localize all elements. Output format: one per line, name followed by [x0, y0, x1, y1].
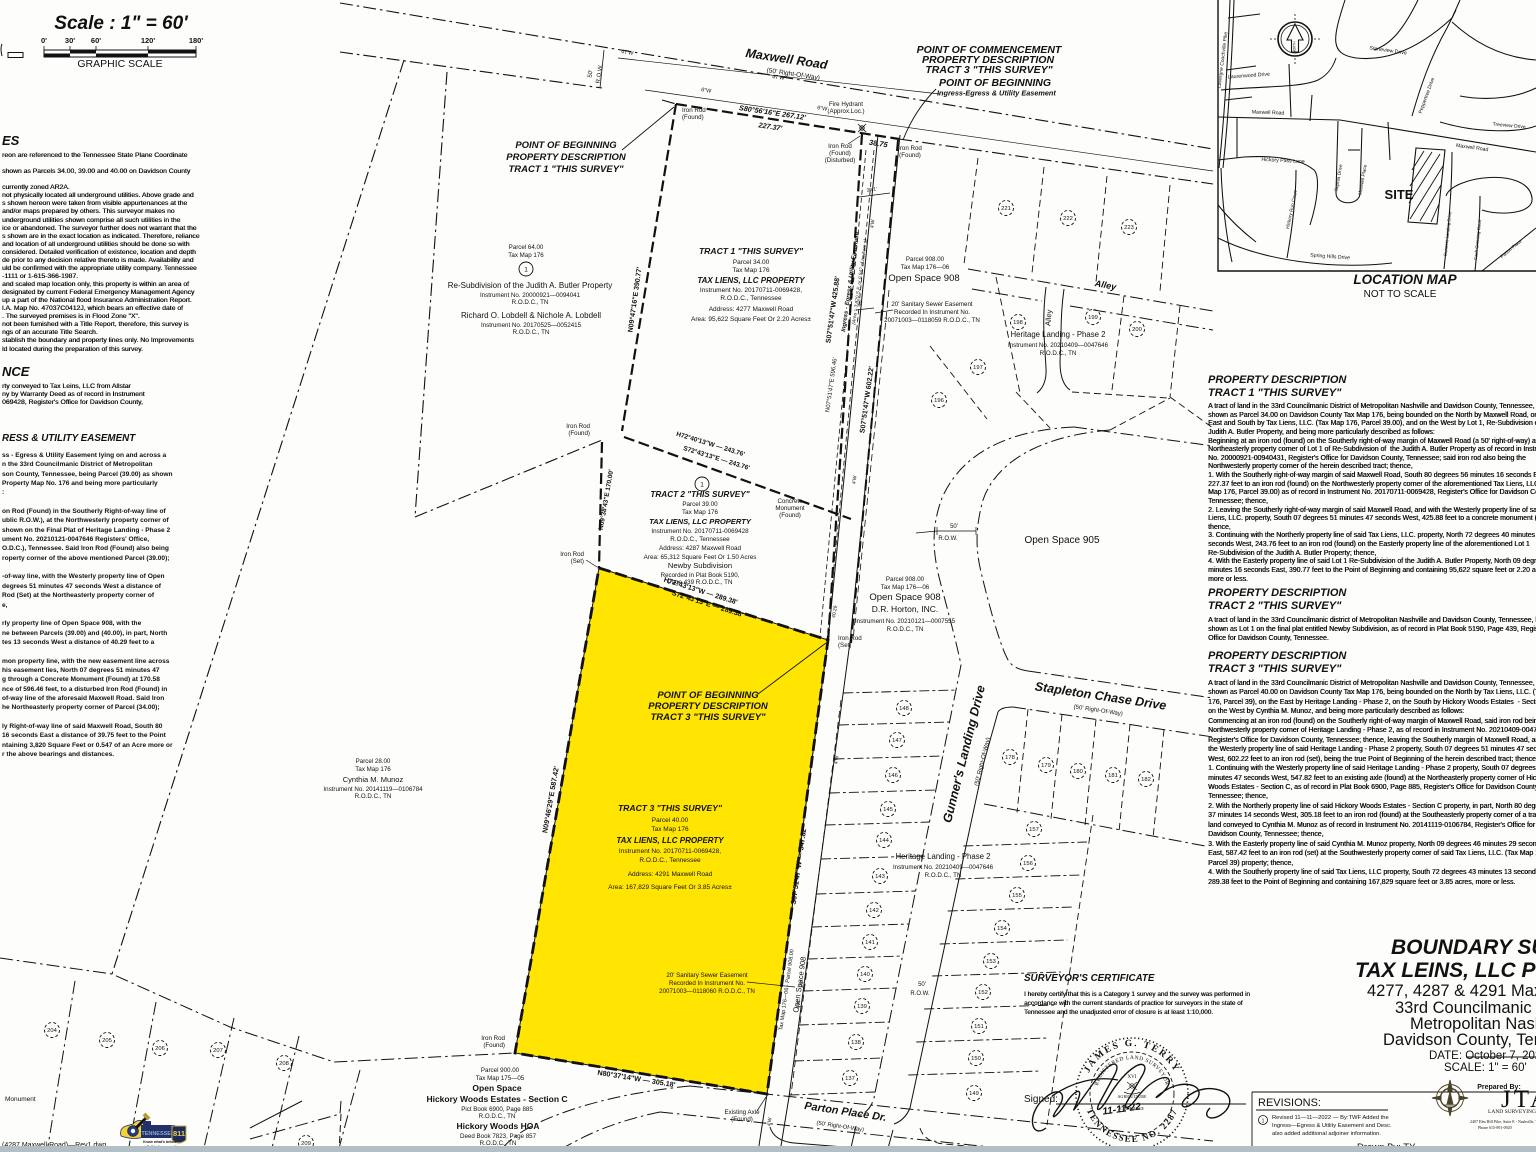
svg-text:TRACT 2 "THIS SURVEY": TRACT 2 "THIS SURVEY": [650, 490, 749, 499]
svg-text:Maxwell Road: Maxwell Road: [1456, 143, 1489, 153]
svg-text:Concrete: Concrete: [777, 498, 803, 505]
svg-text:4'W: 4'W: [869, 219, 876, 228]
svg-text:Open Space 905: Open Space 905: [1024, 535, 1099, 546]
svg-text:152: 152: [978, 990, 988, 996]
svg-text:1: 1: [1262, 1119, 1265, 1125]
svg-text:R.O.D.C., TN: R.O.D.C., TN: [479, 1113, 516, 1120]
svg-text:Existing Axle: Existing Axle: [724, 1109, 760, 1116]
svg-text:(Found): (Found): [682, 114, 704, 121]
svg-text:198: 198: [1013, 320, 1023, 326]
svg-text:R.O.D.C., TN: R.O.D.C., TN: [512, 299, 549, 306]
svg-text:147: 147: [892, 738, 902, 744]
svg-text:Pict Book 6900, Page 885: Pict Book 6900, Page 885: [461, 1106, 533, 1113]
svg-text:(Found): (Found): [568, 430, 590, 437]
svg-text:60': 60': [91, 36, 101, 45]
svg-text:154: 154: [997, 926, 1007, 932]
svg-text:199: 199: [1088, 315, 1098, 321]
svg-text:Maxwell Road: Maxwell Road: [1252, 109, 1285, 116]
svg-text:Alley: Alley: [1093, 278, 1118, 292]
svg-text:LOCATION MAP: LOCATION MAP: [1353, 272, 1457, 287]
svg-text:(50' Right-Of-Way): (50' Right-Of-Way): [974, 737, 992, 787]
svg-text:(50' Right-Of-Way): (50' Right-Of-Way): [1073, 704, 1123, 717]
svg-text:38.75: 38.75: [868, 138, 889, 150]
svg-text:Gunner's Landing Drive: Gunner's Landing Drive: [940, 684, 988, 824]
svg-text:POINT OF BEGINNING: POINT OF BEGINNING: [939, 77, 1051, 89]
svg-text:Instrument No. 20141119—0106: Instrument No. 20141119—0106784: [323, 786, 423, 793]
svg-text:(Approx.Loc.): (Approx.Loc.): [827, 108, 864, 115]
svg-text:157: 157: [1029, 827, 1039, 833]
svg-text:Instrument No. 20170711-006942: Instrument No. 20170711-0069428,: [619, 848, 721, 855]
svg-text:208: 208: [279, 1061, 289, 1067]
svg-text:Area: 167,829 Square Feet Or 3: Area: 167,829 Square Feet Or 3.85 Acres±: [608, 884, 732, 891]
svg-text:Open Space: Open Space: [472, 1083, 521, 1093]
svg-text:Instrument No. 20210409—0047: Instrument No. 20210409—0047646: [1008, 342, 1109, 349]
svg-text:30': 30': [65, 36, 75, 45]
svg-text:POINT OF BEGINNING: POINT OF BEGINNING: [515, 140, 617, 151]
svg-text:20' Sanitary Sewer Easement: 20' Sanitary Sewer Easement: [666, 972, 748, 979]
svg-text:155: 155: [1012, 893, 1022, 899]
svg-text:Parcel 900.00: Parcel 900.00: [481, 1067, 520, 1074]
svg-text:811: 811: [173, 1129, 185, 1138]
svg-text:Cynthia M. Munoz: Cynthia M. Munoz: [343, 775, 404, 784]
svg-text:(Found): (Found): [483, 1042, 505, 1049]
svg-text:197: 197: [973, 365, 983, 371]
svg-text:PROPERTY DESCRIPTION: PROPERTY DESCRIPTION: [506, 152, 627, 163]
svg-text:Recorded In Instrument No.: Recorded In Instrument No.: [669, 980, 745, 987]
svg-text:Area: 95,622 Square Feet Or 2.: Area: 95,622 Square Feet Or 2.20 Acres±: [691, 316, 811, 323]
svg-text:222: 222: [1063, 216, 1073, 222]
svg-text:Parcel 40.00: Parcel 40.00: [652, 817, 689, 824]
svg-text:(Found): (Found): [899, 152, 921, 159]
svg-text:0': 0': [41, 36, 47, 45]
svg-text:Scale : 1" = 60': Scale : 1" = 60': [54, 13, 189, 34]
svg-text:Ingress—Egress & Utility Ea: Ingress—Egress & Utility Easement and De…: [1272, 1123, 1392, 1129]
svg-text:Hickory Woods HOA: Hickory Woods HOA: [457, 1121, 540, 1131]
svg-text:R.O.W.: R.O.W.: [910, 991, 930, 997]
svg-text:Heritage Landing - Phase 2: Heritage Landing - Phase 2: [896, 852, 991, 861]
svg-text:4'W: 4'W: [851, 475, 858, 484]
svg-text:TAX LIENS, LLC PROPERTY: TAX LIENS, LLC PROPERTY: [616, 836, 724, 845]
svg-text:Parcel 34.00: Parcel 34.00: [733, 259, 770, 266]
svg-text:also added additional adjoi: also added additional adjoiner informati…: [1272, 1131, 1381, 1137]
svg-text:R.O.D.C., TN: R.O.D.C., TN: [513, 329, 550, 336]
svg-text:GRAPHIC SCALE: GRAPHIC SCALE: [77, 58, 162, 70]
svg-text:156: 156: [1023, 861, 1033, 867]
svg-text:(Set): (Set): [571, 558, 584, 565]
svg-text:XVI: XVI: [1128, 1075, 1137, 1080]
svg-text:TENNESSEE: TENNESSEE: [141, 1131, 175, 1137]
svg-text:R.O.W.: R.O.W.: [938, 536, 958, 542]
svg-text:182: 182: [1141, 777, 1151, 783]
svg-text:180': 180': [189, 36, 204, 45]
svg-text:Parcel 908.00: Parcel 908.00: [886, 576, 925, 583]
svg-text:50': 50': [918, 982, 926, 988]
svg-text:1: 1: [700, 482, 704, 489]
svg-text:S07°51'47"W 425.88': S07°51'47"W 425.88': [824, 275, 841, 343]
svg-text:6"W: 6"W: [701, 87, 713, 94]
svg-text:R.O.D.C., TN: R.O.D.C., TN: [887, 626, 924, 633]
svg-text:R.O.D.C., Tennessee: R.O.D.C., Tennessee: [639, 857, 701, 864]
svg-text:Address: 4291 Maxwell Road: Address: 4291 Maxwell Road: [628, 871, 713, 878]
svg-text:Alley: Alley: [1043, 309, 1053, 326]
svg-text:Ingress-Egress & Utility Easem: Ingress-Egress & Utility Easement: [937, 89, 1056, 98]
svg-text:(50' Right-Of-Way): (50' Right-Of-Way): [816, 1121, 864, 1134]
svg-text:223: 223: [1124, 225, 1134, 231]
svg-text:Address: 4277 Maxwell Road: Address: 4277 Maxwell Road: [709, 306, 794, 313]
svg-text:Peppertree Drive: Peppertree Drive: [1418, 77, 1437, 115]
svg-text:Tax Map 176: Tax Map 176: [682, 509, 719, 516]
svg-text:Iron Rod: Iron Rod: [682, 107, 706, 114]
svg-text:(Disturbed): (Disturbed): [825, 157, 856, 164]
svg-text:Stoneview Drive: Stoneview Drive: [1369, 45, 1407, 56]
svg-text:150: 150: [971, 1056, 981, 1062]
svg-text:50': 50': [587, 70, 594, 79]
svg-text:151: 151: [974, 1024, 984, 1030]
svg-text:N07°51'47"E 596.46': N07°51'47"E 596.46': [825, 357, 839, 413]
svg-text:R.O.D.C., TN: R.O.D.C., TN: [480, 1140, 517, 1147]
svg-text:Parcel 908.00: Parcel 908.00: [906, 256, 945, 263]
svg-text:SITE: SITE: [1385, 187, 1414, 202]
svg-text:Richard O. Lobdell & Nichole A: Richard O. Lobdell & Nichole A. Lobdell: [461, 311, 601, 320]
svg-text:Parcel 39.00: Parcel 39.00: [682, 501, 718, 508]
svg-text:Open Space 908: Open Space 908: [869, 592, 940, 603]
svg-text:149: 149: [969, 1091, 979, 1097]
svg-text:(Found): (Found): [829, 150, 851, 157]
svg-text:Area: 65,312 Square Feet Or 1.: Area: 65,312 Square Feet Or 1.50 Acres: [644, 554, 757, 561]
svg-text:196: 196: [934, 398, 944, 404]
svg-text:Hickory Run Court: Hickory Run Court: [1285, 189, 1299, 229]
svg-text:Instrument No. 20210121—0007: Instrument No. 20210121—0007555: [855, 618, 956, 625]
svg-text:R.O.D.C., Tennessee: R.O.D.C., Tennessee: [670, 536, 730, 543]
svg-text:Iron Rod: Iron Rod: [838, 635, 862, 642]
svg-text:153: 153: [986, 959, 996, 965]
svg-text:Iron Rod: Iron Rod: [828, 143, 852, 150]
svg-text:Recorded In Instrument No.: Recorded In Instrument No.: [894, 309, 970, 316]
svg-text:138: 138: [851, 1040, 861, 1046]
svg-text:Gunners Landing Drive: Gunners Landing Drive: [1443, 211, 1453, 257]
svg-text:206: 206: [155, 1046, 165, 1052]
svg-text:Heritage Landing - Phase 2: Heritage Landing - Phase 2: [1011, 330, 1106, 339]
svg-text:R.O.D.C., Tennessee: R.O.D.C., Tennessee: [720, 295, 782, 302]
svg-text:Tax Map 175—05: Tax Map 175—05: [476, 1075, 525, 1082]
svg-text:142: 142: [869, 908, 879, 914]
svg-text:TRACT 3 "THIS SURVEY": TRACT 3 "THIS SURVEY": [618, 803, 723, 813]
svg-text:AGRICULTURE: AGRICULTURE: [1117, 1094, 1147, 1099]
svg-text:Tax Map 176: Tax Map 176: [732, 267, 770, 274]
svg-text:NORTH: NORTH: [1293, 41, 1297, 53]
svg-text:REGISTERED LAND SURVEYOR: REGISTERED LAND SURVEYOR: [1094, 1055, 1170, 1086]
svg-text:207: 207: [213, 1048, 223, 1054]
svg-text:Open Space 908: Open Space 908: [888, 273, 959, 284]
svg-text:50': 50': [950, 524, 958, 530]
svg-text:Maxwell Place: Maxwell Place: [1357, 164, 1368, 196]
svg-text:145: 145: [883, 807, 893, 813]
svg-text:Monument: Monument: [775, 505, 805, 512]
svg-text:20071003—0118059 R.O.D.C., T: 20071003—0118059 R.O.D.C., TN: [884, 317, 980, 324]
svg-text:(Found): (Found): [779, 512, 801, 519]
svg-text:Revised 11—11—2022 — By:TWF: Revised 11—11—2022 — By:TWF Added the: [1272, 1115, 1389, 1121]
svg-text:R.O.W.: R.O.W.: [596, 64, 605, 84]
svg-text:Laurenwood Drive: Laurenwood Drive: [1228, 72, 1271, 81]
svg-text:4'W: 4'W: [766, 1117, 773, 1126]
svg-text:REVISIONS:: REVISIONS:: [1258, 1097, 1321, 1109]
svg-text:(Set): (Set): [838, 642, 851, 649]
svg-text:178: 178: [1005, 755, 1015, 761]
svg-text:139: 139: [857, 1004, 867, 1010]
svg-text:Newby Subdivision: Newby Subdivision: [668, 561, 732, 570]
svg-text:Tax Map 176: Tax Map 176: [651, 826, 689, 833]
svg-text:221: 221: [1001, 206, 1011, 212]
svg-text:180: 180: [1073, 769, 1083, 775]
svg-text:204: 204: [47, 1028, 57, 1034]
svg-text:20071003—0118060 R.O.D.C., TN: 20071003—0118060 R.O.D.C., TN: [659, 988, 755, 995]
svg-text:Re-Subdivision of the Judith A: Re-Subdivision of the Judith A. Butler P…: [448, 281, 613, 290]
svg-text:120': 120': [141, 36, 156, 45]
svg-text:S07°51'47"W 602.22': S07°51'47"W 602.22': [858, 365, 875, 433]
svg-text:TRACT 3 "THIS SURVEY": TRACT 3 "THIS SURVEY": [925, 64, 1053, 76]
svg-text:40.29: 40.29: [831, 605, 839, 619]
svg-text:Know what's below.: Know what's below.: [143, 1140, 177, 1144]
svg-text:Treeview Drive: Treeview Drive: [1492, 122, 1526, 131]
svg-text:Fire Hydrant: Fire Hydrant: [829, 101, 863, 108]
svg-text:TRACT 3 "THIS SURVEY": TRACT 3 "THIS SURVEY": [650, 712, 766, 723]
svg-text:20' Sanitary Sewer Easement: 20' Sanitary Sewer Easement: [891, 301, 973, 308]
svg-text:205: 205: [102, 1038, 112, 1044]
svg-text:140: 140: [860, 972, 870, 978]
svg-text:144: 144: [879, 838, 889, 844]
svg-text:Address: 4287 Maxwell Road: Address: 4287 Maxwell Road: [659, 545, 741, 552]
svg-text:Cash Crossing Court: Cash Crossing Court: [1473, 219, 1482, 261]
svg-text:Iron Rod: Iron Rod: [481, 1035, 505, 1042]
svg-text:Iron Rod: Iron Rod: [566, 423, 590, 430]
svg-text:D.R. Horton, INC.: D.R. Horton, INC.: [872, 604, 939, 614]
svg-text:R.O.D.C., TN: R.O.D.C., TN: [355, 793, 392, 800]
svg-text:Instrument No. 20000921—0094: Instrument No. 20000921—0094041: [480, 292, 581, 299]
svg-text:Iron Rod: Iron Rod: [898, 145, 922, 152]
svg-text:PROPERTY DESCRIPTION: PROPERTY DESCRIPTION: [648, 701, 769, 712]
svg-text:Parcel 64.00: Parcel 64.00: [509, 244, 544, 251]
svg-text:179: 179: [1041, 763, 1051, 769]
svg-text:Hickory Pass Lane: Hickory Pass Lane: [1261, 157, 1305, 165]
svg-text:Deed Book 7823, Page 857: Deed Book 7823, Page 857: [460, 1133, 537, 1140]
svg-text:TRACT 1 "THIS SURVEY": TRACT 1 "THIS SURVEY": [699, 246, 804, 256]
svg-text:N09°47'16"E 390.77': N09°47'16"E 390.77': [626, 266, 643, 333]
svg-text:Tax Map 176: Tax Map 176: [355, 766, 391, 773]
svg-text:146: 146: [888, 773, 898, 779]
svg-text:Sophia Drive: Sophia Drive: [1334, 163, 1345, 191]
svg-text:227.37': 227.37': [757, 120, 783, 133]
svg-text:Spring Hills Drive: Spring Hills Drive: [1310, 253, 1350, 262]
svg-text:NOT TO SCALE: NOT TO SCALE: [1364, 289, 1437, 300]
svg-text:47'W: 47'W: [621, 49, 635, 57]
svg-text:137: 137: [845, 1076, 855, 1082]
svg-text:TAX LIENS, LLC PROPERTY: TAX LIENS, LLC PROPERTY: [649, 517, 752, 526]
svg-text:143: 143: [875, 874, 885, 880]
svg-text:141: 141: [865, 940, 875, 946]
svg-text:Tax Map 176—06: Tax Map 176—06: [901, 264, 950, 271]
svg-text:1: 1: [524, 267, 528, 274]
svg-text:20': 20': [798, 980, 805, 988]
svg-text:Parton Place: Parton Place: [1499, 238, 1523, 259]
svg-text:Iron Rod: Iron Rod: [560, 551, 584, 558]
svg-text:Instrument No. 20170525—0052: Instrument No. 20170525—0052415: [481, 322, 582, 329]
svg-text:Tax Map 176—06: Tax Map 176—06: [881, 584, 930, 591]
svg-text:Maxwell Road: Maxwell Road: [745, 46, 829, 72]
svg-text:Instrument No. 20210409—0047: Instrument No. 20210409—0047646: [893, 864, 994, 871]
svg-text:R.O.D.C., TN: R.O.D.C., TN: [1040, 350, 1077, 357]
svg-text:Instrument No. 20170711-006942: Instrument No. 20170711-0069428: [651, 528, 749, 535]
svg-text:Monument: Monument: [5, 1096, 36, 1103]
svg-text:4'W: 4'W: [833, 755, 840, 764]
svg-text:39.1': 39.1': [866, 186, 877, 193]
svg-text:200: 200: [1132, 327, 1142, 333]
svg-text:TAX LIENS, LLC PROPERTY: TAX LIENS, LLC PROPERTY: [697, 276, 805, 285]
svg-text:148: 148: [899, 706, 909, 712]
svg-text:Hickory Woods Estates - Sectio: Hickory Woods Estates - Section C: [426, 1094, 567, 1104]
svg-text:181: 181: [1108, 773, 1118, 779]
svg-text:TRACT 1 "THIS SURVEY": TRACT 1 "THIS SURVEY": [508, 164, 624, 175]
svg-text:Instrument No. 20170711-006942: Instrument No. 20170711-0069428,: [700, 287, 802, 294]
svg-text:LAND SURVEYING, INC.: LAND SURVEYING, INC.: [1488, 1109, 1536, 1115]
svg-text:POINT OF BEGINNING: POINT OF BEGINNING: [657, 690, 759, 701]
svg-text:Recorded in Plat Book 5190,: Recorded in Plat Book 5190,: [661, 572, 740, 579]
svg-text:Phone 615-891-0920: Phone 615-891-0920: [1478, 1125, 1512, 1130]
svg-text:Parcel 28.00: Parcel 28.00: [356, 758, 391, 765]
svg-text:Tax Map 176: Tax Map 176: [508, 252, 544, 259]
svg-text:R.O.D.C., TN: R.O.D.C., TN: [925, 872, 962, 879]
